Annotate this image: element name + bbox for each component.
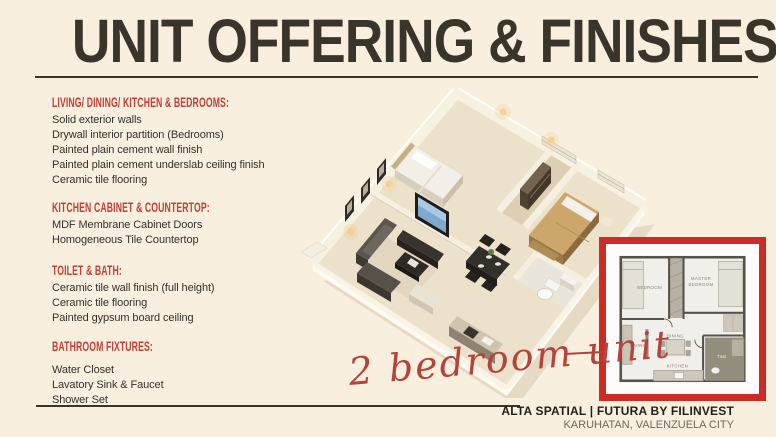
specs-list: LIVING/ DINING/ KITCHEN & BEDROOMS: Soli… [52,94,332,408]
spec-item: Drywall interior partition (Bedrooms) [52,128,332,143]
spec-item: Ceramic tile flooring [52,296,332,311]
spec-section-toilet-bath: TOILET & BATH: Ceramic tile wall finish … [52,262,332,326]
footer: ALTA SPATIAL | FUTURA BY FILINVEST KARUH… [501,404,734,431]
page-title-text: UNIT OFFERING & FINISHES [72,5,776,77]
spec-item: Painted plain cement wall finish [52,143,332,158]
spec-item: Painted gypsum board ceiling [52,311,332,326]
project-name: ALTA SPATIAL | FUTURA BY FILINVEST [501,404,734,418]
title-underline [35,76,758,78]
spec-item: Ceramic tile flooring [52,173,332,188]
plan-label-master-2: BEDROOM [689,282,714,287]
spec-section-living-dining: LIVING/ DINING/ KITCHEN & BEDROOMS: Soli… [52,94,332,188]
section-heading: KITCHEN CABINET & COUNTERTOP: [52,199,332,216]
spec-section-bathroom-fixtures: BATHROOM FIXTURES: Water Closet Lavatory… [52,338,332,408]
spec-item: Lavatory Sink & Faucet [52,378,332,393]
floor-plan-card: BEDROOM MASTER BEDROOM LIVING DINING KIT… [599,237,766,401]
spec-item: Water Closet [52,363,332,378]
section-heading: LIVING/ DINING/ KITCHEN & BEDROOMS: [52,94,332,111]
bottom-divider [36,405,520,407]
spec-item: Painted plain cement underslab ceiling f… [52,158,332,173]
plan-label-master-1: MASTER [691,276,711,281]
spec-item: Solid exterior walls [52,113,332,128]
spec-section-kitchen-cabinet: KITCHEN CABINET & COUNTERTOP: MDF Membra… [52,199,332,248]
plan-label-toilet-bath: T&B [717,354,727,359]
project-location: KARUHATAN, VALENZUELA CITY [501,419,734,431]
spec-item: Homogeneous Tile Countertop [52,233,332,248]
plan-label-bedroom: BEDROOM [637,285,662,290]
spec-item: MDF Membrane Cabinet Doors [52,218,332,233]
section-heading: TOILET & BATH: [52,262,332,279]
spec-item: Ceramic tile wall finish (full height) [52,281,332,296]
page-title: UNIT OFFERING & FINISHES [35,5,758,69]
section-heading: BATHROOM FIXTURES: [52,338,332,355]
